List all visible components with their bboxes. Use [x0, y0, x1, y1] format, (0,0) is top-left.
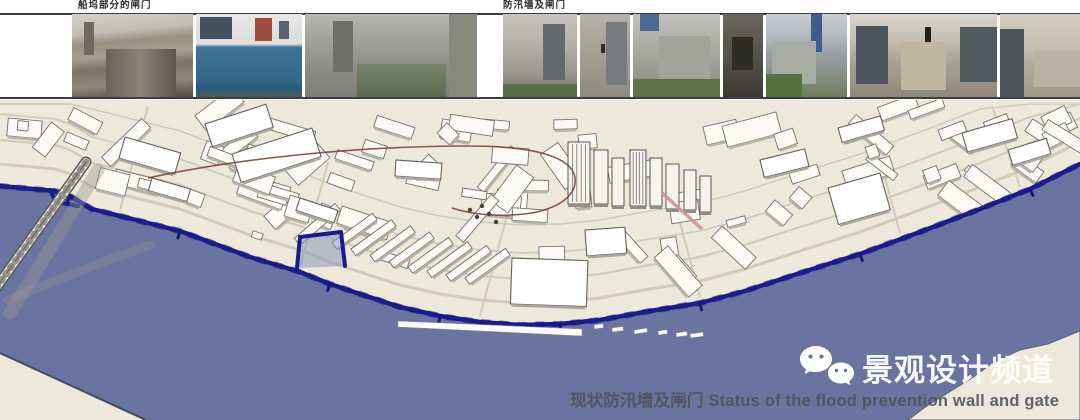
tree-mark [475, 215, 479, 219]
photo-wall-grass [633, 14, 720, 97]
building-shape [17, 121, 28, 131]
tree-mark [468, 208, 472, 212]
presentation-slide: { "photo_strip": { "group1_label": "船坞部分… [0, 0, 1080, 420]
building-shape [554, 119, 578, 132]
photo-dock-channel [305, 14, 477, 97]
photo-wall-gate-1 [503, 14, 577, 97]
tree-mark [487, 212, 491, 216]
flood-wall-gates-label: 防汛墙及闸门 [503, 0, 566, 12]
photo-wall-truss [766, 14, 847, 97]
building-shape [395, 160, 442, 182]
wechat-icon [799, 344, 855, 390]
building-shape [585, 227, 627, 258]
ship-dock-basin [297, 232, 345, 268]
photo-river-view [1000, 14, 1080, 97]
photo-wall-gate-2 [580, 14, 630, 97]
photo-dry-dock [72, 14, 193, 97]
strip-bottom-border [0, 97, 1080, 99]
channel-name: 景观设计频道 [862, 345, 1054, 390]
photo-industrial-dark [723, 14, 763, 97]
photo-stairs-person [850, 14, 997, 97]
wechat-watermark: 景观设计频道 [799, 344, 1054, 390]
dock-gates-label: 船坞部分的闸门 [78, 0, 152, 12]
building-shape [510, 258, 588, 309]
drawing-caption: 现状防汛墙及闸门 Status of the flood prevention … [570, 387, 1059, 411]
photo-blue-dock-gate [196, 14, 302, 97]
tree-mark [480, 204, 484, 208]
tree-mark [494, 220, 498, 224]
